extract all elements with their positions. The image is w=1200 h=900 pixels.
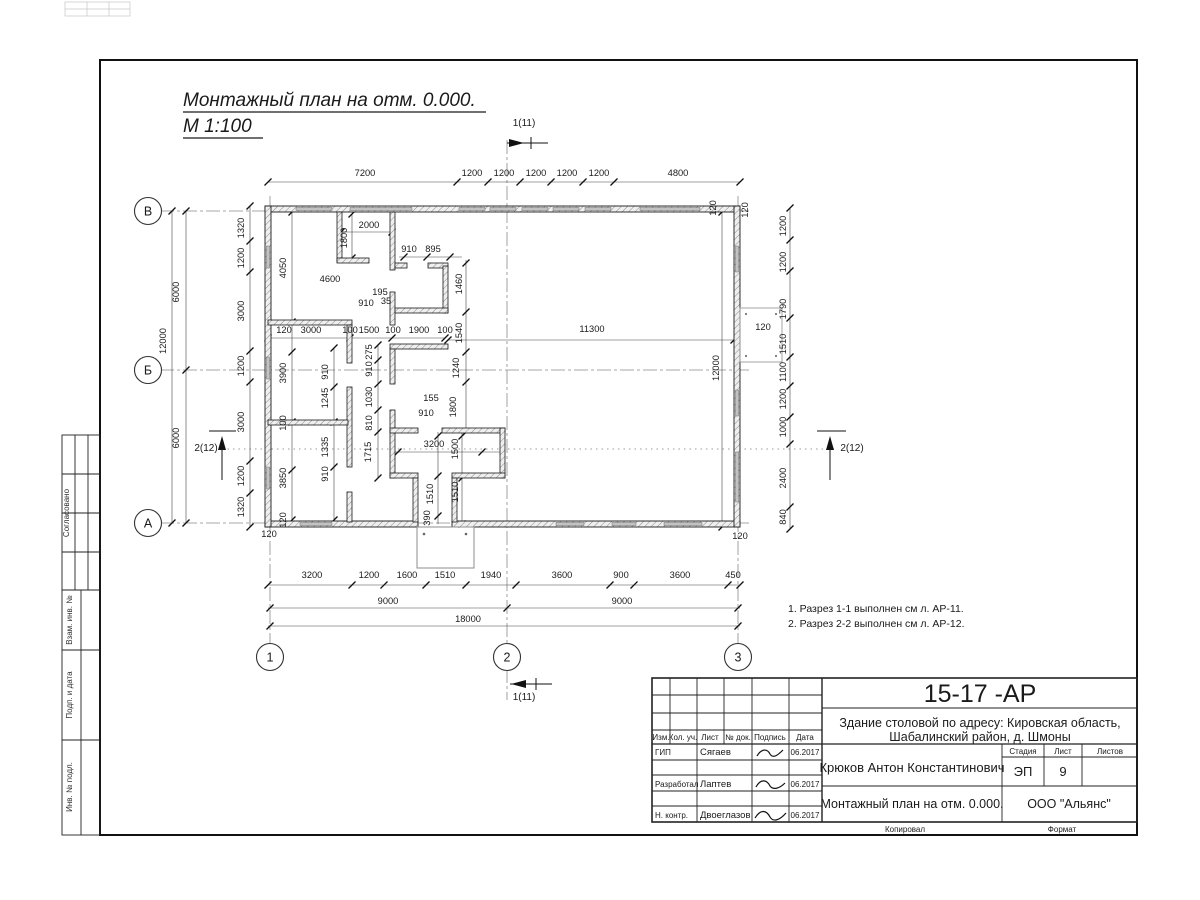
partition-wall xyxy=(395,308,448,313)
dim-label: 1240 xyxy=(451,358,461,379)
window xyxy=(585,208,611,211)
dim-label: 1540 xyxy=(454,323,464,344)
axis-bubble-label: Б xyxy=(144,364,152,378)
section-arrow-icon xyxy=(826,436,834,450)
col-doc: № док. xyxy=(725,733,751,742)
sheet-number: 9 xyxy=(1059,764,1066,779)
dim-label: 1500 xyxy=(450,439,460,460)
row-role: Н. контр. xyxy=(655,811,688,820)
dimension-chains xyxy=(169,179,794,630)
floor-plan: 7200120012001200120012004800120120120012… xyxy=(135,118,864,703)
dim-label: 1320 xyxy=(236,218,246,239)
section-marker-flags xyxy=(209,137,846,690)
partition-wall xyxy=(390,410,395,478)
axis-bubble-label: 2 xyxy=(504,651,511,665)
axis-bubble-label: А xyxy=(144,517,153,531)
dim-label: 1510 xyxy=(450,482,460,503)
dim-label: 120 xyxy=(276,325,292,335)
partition-wall xyxy=(347,492,352,522)
section-marker-label: 1(11) xyxy=(513,118,536,129)
stage-label: Стадия xyxy=(1009,747,1036,756)
row-name: Сягаев xyxy=(700,747,731,758)
right-bay xyxy=(740,308,782,362)
dim-label: 1200 xyxy=(359,570,380,580)
dim-label: 895 xyxy=(425,244,441,254)
drawing-sheet: Согласовано Взам. инв. № Подп. и дата Ин… xyxy=(0,0,1200,900)
company-name: ООО "Альянс" xyxy=(1027,797,1111,811)
partition-wall xyxy=(390,428,418,433)
section-marker-label: 1(11) xyxy=(513,692,536,703)
dim-label: 100 xyxy=(437,325,453,335)
axis-bubble-label: 3 xyxy=(735,651,742,665)
window xyxy=(522,208,548,211)
dim-label: 3600 xyxy=(670,570,691,580)
partition-wall xyxy=(390,344,448,349)
window xyxy=(267,246,270,268)
partition-wall xyxy=(390,349,395,384)
dim-label: 910 xyxy=(364,361,374,377)
dim-label: 1320 xyxy=(236,497,246,518)
dim-label: 3200 xyxy=(424,439,445,449)
dim-label: 3900 xyxy=(278,363,288,384)
dim-label: 100 xyxy=(342,325,358,335)
dim-label: 3000 xyxy=(236,412,246,433)
format-label: Формат xyxy=(1048,825,1077,834)
dim-label: 155 xyxy=(423,393,439,403)
dim-label: 1460 xyxy=(454,274,464,295)
dim-label: 1000 xyxy=(778,417,788,438)
dim-label: 3850 xyxy=(278,468,288,489)
dim-label: 1510 xyxy=(425,484,435,505)
dim-label: 12000 xyxy=(711,355,721,381)
window xyxy=(736,390,739,416)
title-block: 15-17 -АР Здание столовой по адресу: Кир… xyxy=(652,678,1137,834)
window xyxy=(296,208,332,211)
dim-label: 910 xyxy=(358,298,374,308)
partition-wall xyxy=(500,428,505,478)
dim-label: 100 xyxy=(278,415,288,431)
sheet-label: Лист xyxy=(1054,747,1072,756)
dim-label: 9000 xyxy=(612,596,633,606)
dim-label: 1940 xyxy=(481,570,502,580)
section-arrow-icon xyxy=(218,436,226,450)
dim-label: 7200 xyxy=(355,168,376,178)
doc-number: 15-17 -АР xyxy=(924,680,1037,708)
sheets-label: Листов xyxy=(1097,747,1123,756)
dim-label: 4600 xyxy=(320,274,341,284)
project-line1: Здание столовой по адресу: Кировская обл… xyxy=(839,716,1120,730)
dim-label: 1030 xyxy=(364,387,374,408)
dim-label: 1200 xyxy=(236,248,246,269)
entry-porch xyxy=(417,527,474,568)
plan-title-line2: М 1:100 xyxy=(183,116,252,137)
partition-wall xyxy=(413,478,418,522)
dim-label: 11300 xyxy=(579,324,604,334)
window xyxy=(459,208,485,211)
dim-label: 3000 xyxy=(301,325,322,335)
col-kol: Кол. уч. xyxy=(669,733,697,742)
dimension-labels: 7200120012001200120012004800120120120012… xyxy=(158,168,788,624)
row-name: Лаптев xyxy=(700,779,731,790)
window xyxy=(490,208,516,211)
row-date: 06.2017 xyxy=(791,748,820,757)
dim-label: 1800 xyxy=(448,397,458,418)
dim-label: 1200 xyxy=(494,168,515,178)
dim-label: 1200 xyxy=(236,466,246,487)
window xyxy=(664,523,702,526)
signature xyxy=(757,750,783,756)
row-date: 06.2017 xyxy=(791,811,820,820)
side-stamp-column: Согласовано Взам. инв. № Подп. и дата Ин… xyxy=(62,435,100,835)
dim-label: 4050 xyxy=(278,258,288,279)
window xyxy=(556,523,584,526)
dim-label: 1600 xyxy=(397,570,418,580)
window xyxy=(640,208,700,211)
copied-label: Копировал xyxy=(885,825,925,834)
dim-label: 1200 xyxy=(589,168,610,178)
dim-label: 1790 xyxy=(778,299,788,320)
dim-label: 275 xyxy=(364,344,374,360)
dim-label: 1510 xyxy=(435,570,456,580)
window xyxy=(300,523,332,526)
stamp-inv-label: Инв. № подл. xyxy=(65,762,74,812)
dim-label: 810 xyxy=(364,415,374,431)
dim-label: 120 xyxy=(732,531,748,541)
axis-bubble-label: 1 xyxy=(267,651,274,665)
dim-label: 1200 xyxy=(462,168,483,178)
axis-bubble-label: В xyxy=(144,205,152,219)
dim-label: 1200 xyxy=(236,356,246,377)
partition-wall xyxy=(390,473,418,478)
dim-label: 6000 xyxy=(171,282,181,303)
dim-label: 1900 xyxy=(409,325,430,335)
window xyxy=(267,357,270,379)
dim-label: 120 xyxy=(740,202,750,218)
dim-label: 1200 xyxy=(557,168,578,178)
plan-title: Монтажный план на отм. 0.000. М 1:100 xyxy=(183,90,486,138)
window xyxy=(553,208,579,211)
signature xyxy=(756,781,785,789)
dim-label: 1200 xyxy=(778,216,788,237)
dim-label: 910 xyxy=(401,244,417,254)
dim-label: 910 xyxy=(320,466,330,482)
partition-wall xyxy=(337,258,369,263)
row-name: Двоеглазов xyxy=(700,810,751,821)
dim-label: 18000 xyxy=(455,614,481,624)
dim-label: 1335 xyxy=(320,437,330,458)
drawing-title: Монтажный план на отм. 0.000. xyxy=(820,797,1003,811)
partition-wall xyxy=(452,473,505,478)
dim-label: 840 xyxy=(778,509,788,525)
dim-label: 3000 xyxy=(236,301,246,322)
row-role: ГИП xyxy=(655,748,671,757)
window xyxy=(736,246,739,272)
partition-wall xyxy=(390,212,395,270)
notes: 1. Разрез 1-1 выполнен см л. АР-11. 2. Р… xyxy=(788,603,965,630)
stamp-vzam-label: Взам. инв. № xyxy=(65,595,74,645)
window xyxy=(350,208,412,211)
section-arrow-icon xyxy=(509,139,524,147)
dim-label: 910 xyxy=(418,408,434,418)
col-list: Лист xyxy=(701,733,719,742)
stamp-agreed-label: Согласовано xyxy=(62,488,71,537)
dim-label: 6000 xyxy=(171,428,181,449)
col-izm: Изм. xyxy=(652,733,669,742)
window xyxy=(267,467,270,489)
dim-label: 2000 xyxy=(359,220,380,230)
dim-label: 3600 xyxy=(552,570,573,580)
window xyxy=(612,523,636,526)
col-sign: Подпись xyxy=(754,733,786,742)
walls xyxy=(265,206,740,527)
dim-label: 1200 xyxy=(778,389,788,410)
corner-mini-table xyxy=(65,2,130,16)
dim-label: 3200 xyxy=(302,570,323,580)
dim-label: 450 xyxy=(725,570,741,580)
dim-label: 100 xyxy=(385,325,401,335)
dim-label: 1245 xyxy=(320,388,330,409)
dim-label: 1715 xyxy=(363,442,373,463)
dim-label: 1800 xyxy=(339,228,349,249)
dim-label: 390 xyxy=(422,510,432,526)
dim-label: 35 xyxy=(381,296,391,306)
row-role: Разработал xyxy=(655,780,699,789)
partition-wall xyxy=(347,387,352,467)
section-arrow-icon xyxy=(511,680,526,688)
dim-label: 120 xyxy=(261,529,277,539)
dim-label: 9000 xyxy=(378,596,399,606)
row-date: 06.2017 xyxy=(791,780,820,789)
dim-label: 1200 xyxy=(526,168,547,178)
dim-label: 910 xyxy=(320,364,330,380)
project-line2: Шабалинский район, д. Шмоны xyxy=(889,730,1070,744)
window xyxy=(736,452,739,502)
dim-label: 12000 xyxy=(158,328,168,354)
partition-wall xyxy=(443,266,448,313)
signatures xyxy=(755,750,786,820)
dim-label: 1200 xyxy=(778,252,788,273)
dim-label: 1100 xyxy=(778,362,788,382)
plan-title-line1: Монтажный план на отм. 0.000. xyxy=(183,90,476,111)
drawing-canvas: Согласовано Взам. инв. № Подп. и дата Ин… xyxy=(0,0,1200,900)
partition-wall xyxy=(395,263,407,268)
dim-label: 120 xyxy=(278,512,288,528)
section-marker-label: 2(12) xyxy=(840,443,863,454)
section-marker-label: 2(12) xyxy=(194,443,217,454)
note-2: 2. Разрез 2-2 выполнен см л. АР-12. xyxy=(788,618,965,630)
stage-value: ЭП xyxy=(1014,764,1033,779)
dim-label: 2400 xyxy=(778,468,788,489)
stamp-podp-label: Подп. и дата xyxy=(65,671,74,719)
note-1: 1. Разрез 1-1 выполнен см л. АР-11. xyxy=(788,603,964,615)
dim-label: 900 xyxy=(613,570,629,580)
partition-wall xyxy=(442,428,505,433)
dim-label: 1500 xyxy=(359,325,380,335)
signature xyxy=(755,811,786,820)
dim-label: 1510 xyxy=(778,334,788,355)
author-name: Крюков Антон Константинович xyxy=(819,760,1004,775)
dim-label: 120 xyxy=(708,200,718,216)
dim-label: 120 xyxy=(755,322,771,332)
dim-label: 4800 xyxy=(668,168,689,178)
col-date: Дата xyxy=(796,733,814,742)
